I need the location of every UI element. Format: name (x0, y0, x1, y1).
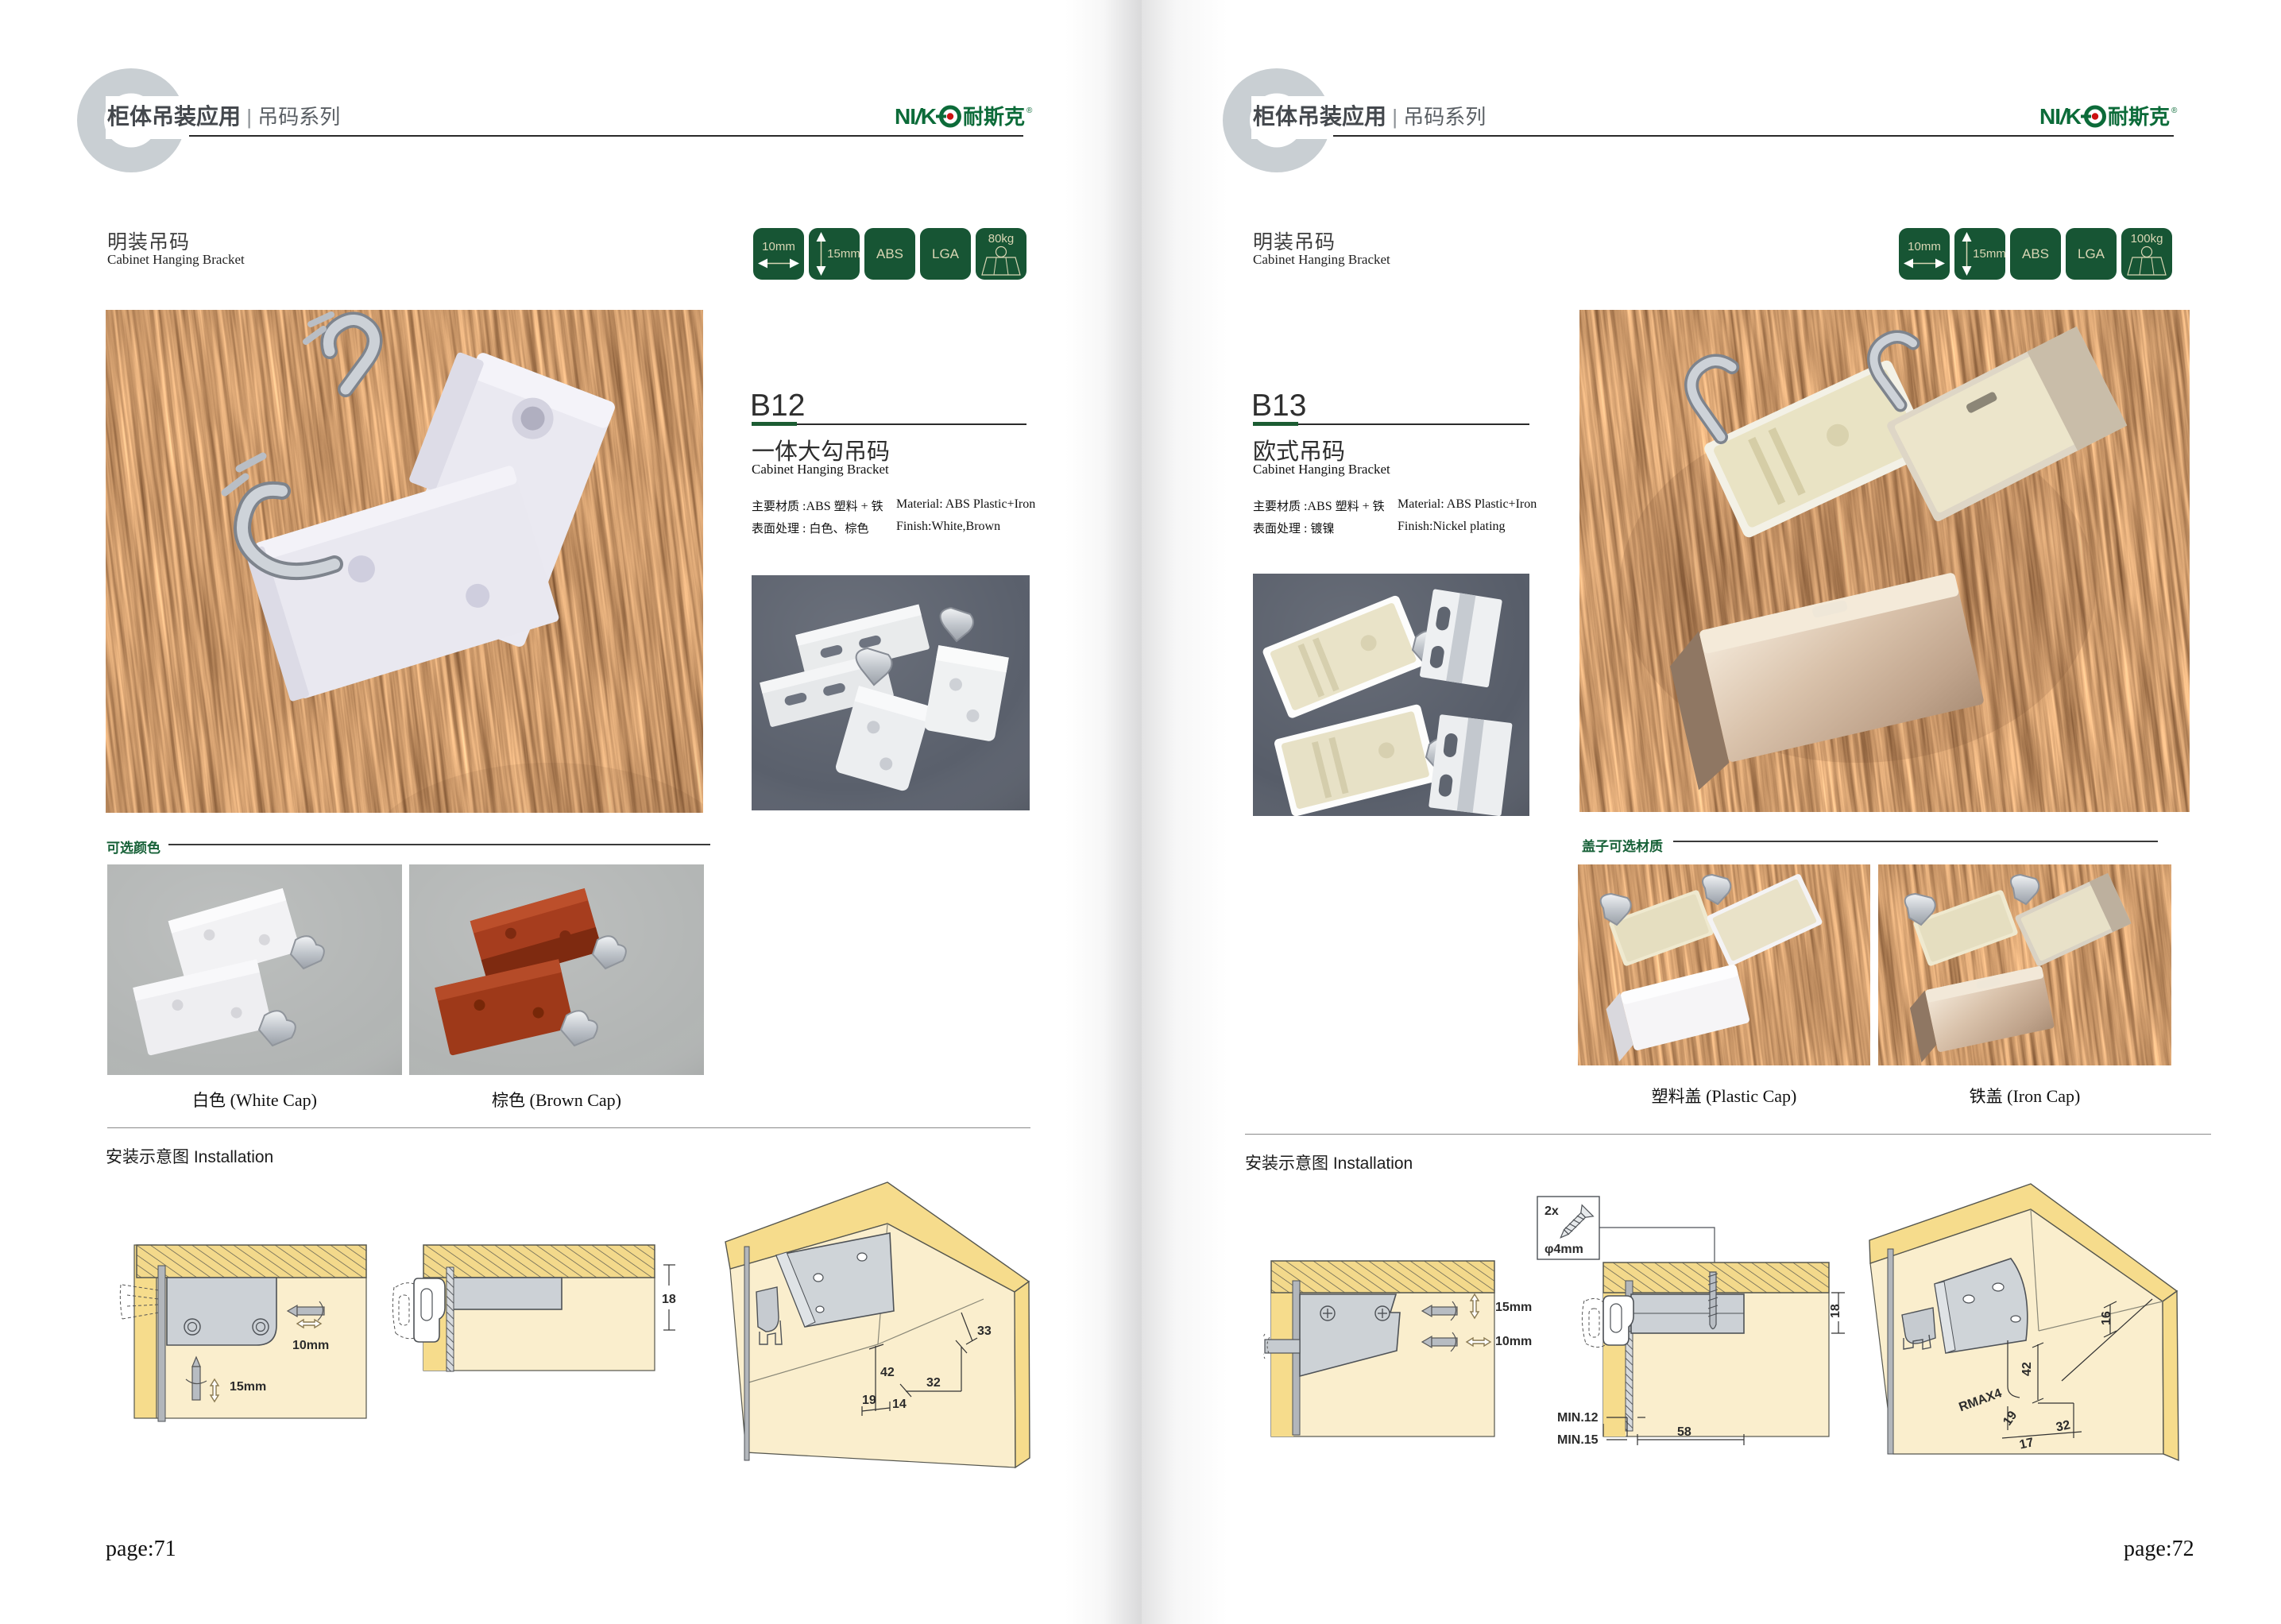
svg-text:MIN.15: MIN.15 (1557, 1433, 1599, 1447)
svg-text:MIN.12: MIN.12 (1557, 1411, 1599, 1425)
svg-text:2x: 2x (1545, 1204, 1559, 1218)
svg-text:耐斯克: 耐斯克 (2108, 105, 2170, 129)
svg-text:10mm: 10mm (292, 1339, 329, 1352)
svg-text:42: 42 (2020, 1362, 2034, 1376)
svg-text:14: 14 (892, 1398, 907, 1411)
svg-text:32: 32 (926, 1376, 941, 1390)
svg-text:18: 18 (662, 1293, 676, 1306)
svg-text:φ4mm: φ4mm (1545, 1243, 1583, 1256)
svg-text:58: 58 (1677, 1425, 1691, 1439)
svg-text:10mm: 10mm (1495, 1335, 1532, 1348)
svg-text:®: ® (2171, 106, 2178, 115)
svg-text:18: 18 (1829, 1304, 1842, 1318)
svg-text:15mm: 15mm (1495, 1301, 1532, 1314)
svg-text:耐斯克: 耐斯克 (963, 105, 1025, 129)
svg-text:42: 42 (880, 1366, 895, 1379)
svg-text:15mm: 15mm (230, 1380, 266, 1394)
svg-text:19: 19 (862, 1394, 876, 1407)
svg-text:NI/K: NI/K (895, 105, 937, 129)
svg-text:33: 33 (977, 1324, 992, 1338)
svg-text:16: 16 (2100, 1311, 2113, 1325)
svg-text:32: 32 (2055, 1418, 2071, 1434)
svg-text:17: 17 (2018, 1436, 2035, 1452)
svg-text:®: ® (1026, 106, 1033, 115)
svg-text:NI/K: NI/K (2039, 105, 2082, 129)
